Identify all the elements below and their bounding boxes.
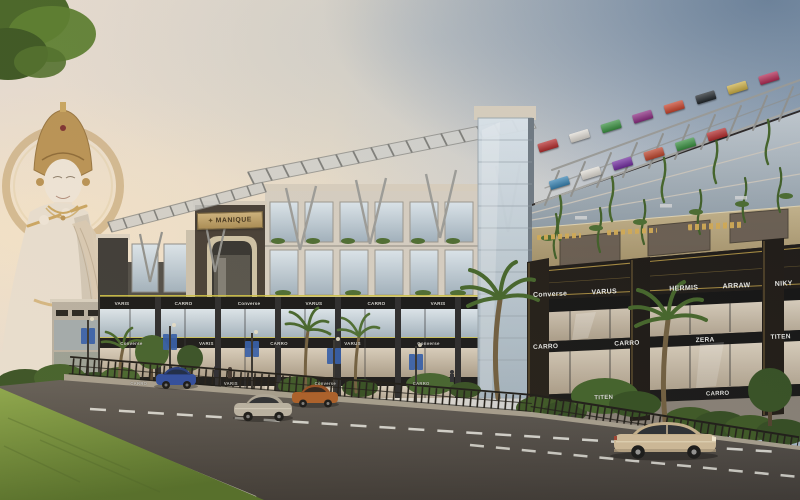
- scene-artwork: [0, 0, 800, 500]
- render-canvas: ✦ MANIQUE VARISCARROConverseVARUSCARROVA…: [0, 0, 800, 500]
- glass-pylon: [474, 106, 536, 398]
- foreground-tree-canopy: [0, 0, 96, 80]
